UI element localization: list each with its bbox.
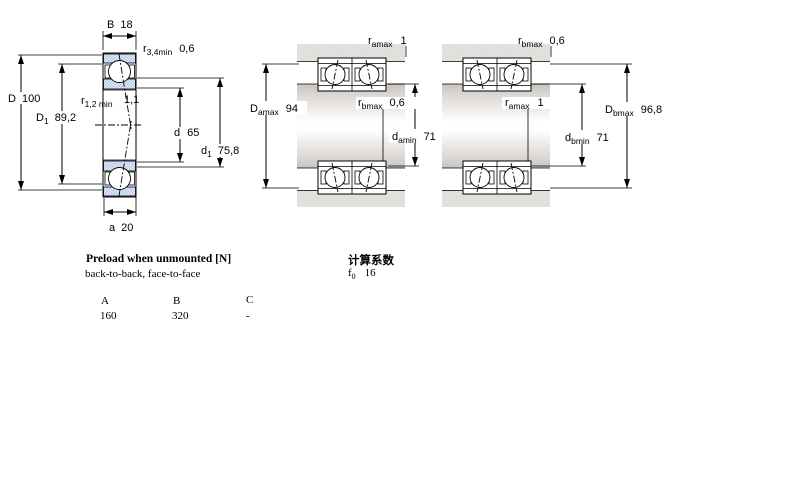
label-D1: D189,2 (36, 112, 76, 126)
label-d1: d175,8 (201, 145, 239, 159)
bearing-pair-top (318, 58, 386, 91)
preload-value-b: 320 (172, 310, 189, 322)
dim-D1: D189,2 (34, 64, 102, 184)
bearing-datasheet-page: B18 r3,4min0,6 D100 D189,2 r1,2 min 1,1 … (0, 0, 800, 500)
label-d: d65 (174, 127, 199, 139)
dim-d1: d175,8 (137, 78, 243, 167)
preload-subtitle: back-to-back, face-to-face (85, 268, 200, 280)
dim-d: d65 (137, 88, 199, 162)
ball-bottom (109, 168, 131, 190)
bearing-pair-top (463, 58, 531, 91)
dim-Dbmax: Dbmax96,8 (550, 64, 670, 188)
label-ramax-arr1: ramax1 (368, 35, 407, 49)
label-r12-value: 1,1 (124, 94, 139, 106)
label-r34: r3,4min0,6 (143, 43, 194, 57)
ball-top (109, 61, 131, 83)
preload-value-c: - (246, 310, 250, 322)
label-B: B18 (107, 19, 133, 31)
dim-r34: r3,4min0,6 (143, 43, 194, 57)
single-bearing-cross-section (95, 53, 142, 197)
dim-B: B18 (103, 19, 136, 50)
arrangement-face-to-face: Dbmax96,8 dbmin71 rbmax0,6 ramax1 (442, 35, 670, 207)
label-D: D100 (8, 93, 40, 105)
f0-subscript: 0 (352, 272, 356, 281)
calc-factor-title: 计算系数 (348, 252, 394, 268)
preload-col-header-a: A (101, 295, 109, 307)
f0-value: 16 (365, 267, 376, 279)
label-a: a20 (109, 222, 133, 234)
bearing-pair-bottom (318, 161, 386, 194)
arrangement-back-to-back: Damax94 damin71 ramax1 rbmax0,6 (247, 35, 445, 207)
bearing-diagram: B18 r3,4min0,6 D100 D189,2 r1,2 min 1,1 … (0, 0, 800, 340)
preload-value-a: 160 (100, 310, 117, 322)
label-rbmax-arr2: rbmax0,6 (518, 35, 565, 49)
bearing-pair-bottom (463, 161, 531, 194)
preload-title: Preload when unmounted [N] (86, 253, 231, 265)
preload-col-header-b: B (173, 295, 180, 307)
calc-factor-f0: f016 (348, 267, 376, 281)
shaft (442, 84, 550, 168)
preload-col-header-c: C (246, 294, 253, 306)
